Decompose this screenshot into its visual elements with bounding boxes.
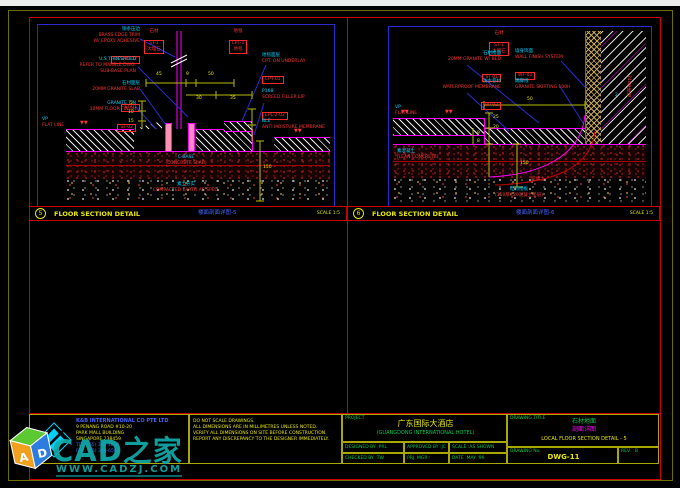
watermark: A D CAD之家 WWW.CADZJ.COM bbox=[6, 422, 236, 484]
field-scale: SCALEAS SHOWN bbox=[449, 442, 507, 453]
paper-edge bbox=[0, 0, 680, 6]
callout-note: FLAT LINE bbox=[42, 123, 102, 129]
tag-line-1: ST-1 bbox=[149, 41, 159, 46]
tag-box: ST-1大理石 bbox=[144, 40, 164, 54]
dim-number: 50 bbox=[527, 97, 533, 103]
field-value: AS SHOWN bbox=[469, 445, 494, 451]
field-checked-by: CHECKED BYTW bbox=[342, 453, 404, 464]
layer-label: 素土夯实 COMPACTED EARTH AS SPEC. bbox=[38, 182, 334, 194]
material-tag: 石材 ST-1大理石 bbox=[134, 29, 174, 54]
field-label: PRJ. MGR bbox=[407, 456, 430, 462]
callout-note: CPT. ON UNDERLAY bbox=[262, 59, 332, 65]
revision-label: REV bbox=[621, 449, 630, 455]
detail-scale: SCALE 1:5 bbox=[630, 211, 653, 217]
field-label: APPROVED BY bbox=[407, 445, 441, 451]
field-label: DESIGNED BY bbox=[345, 445, 379, 451]
drawing-title-cell: DRAWING TITLE 石材地面 剖面详图 LOCAL FLOOR SECT… bbox=[507, 414, 659, 447]
field-label: SCALE bbox=[452, 445, 469, 451]
callout: 踢脚线 GRANITE SKIRTING 100H bbox=[515, 79, 583, 91]
material-tag: 地毯 CPT-1地毯 bbox=[218, 29, 258, 54]
revision-cell: REV B bbox=[618, 447, 659, 464]
drawing-number-value: DWG-11 bbox=[508, 453, 619, 461]
callout: U.S THRESHOLD REFER TO MARBLE DWG. SUB-B… bbox=[40, 57, 136, 75]
dim-number: 5 bbox=[130, 101, 133, 107]
callout-ref-box: WP-02 bbox=[481, 102, 501, 110]
drawing-title-english: LOCAL FLOOR SECTION DETAIL - 5 bbox=[508, 436, 660, 442]
revision-value: B bbox=[635, 449, 638, 455]
field-designed-by: DESIGNED BYPRL bbox=[342, 442, 404, 453]
tag-line-1: ST-1 bbox=[494, 43, 504, 48]
dim-number: 9 bbox=[477, 131, 480, 137]
dim-number: 15 bbox=[128, 119, 134, 125]
project-name-english: (GUANGDONG INTERNATIONAL HOTEL) bbox=[343, 430, 508, 436]
field-label: CHECKED BY bbox=[345, 456, 377, 462]
wall-number: 2 bbox=[615, 93, 618, 99]
wall-annotation: 240厚砖墙 bbox=[625, 75, 631, 97]
dim-number: 9 bbox=[186, 72, 189, 78]
project-cell: PROJECT 广东国际大酒店 (GUANGDONG INTERNATIONAL… bbox=[342, 414, 507, 442]
finish-level-mark: ▼▼ bbox=[294, 128, 302, 134]
detail-5-title-bar: 5 FLOOR SECTION DETAIL 楼面剖面详图-5 SCALE 1:… bbox=[29, 206, 347, 221]
dim-number: 20 bbox=[493, 125, 499, 131]
watermark-url: WWW.CADZJ.COM bbox=[56, 464, 182, 477]
tag-line-1: CPT-1 bbox=[232, 41, 245, 46]
detail-title-chinese: 楼面剖面详图-6 bbox=[516, 210, 554, 217]
tag-line-2: 大理石 bbox=[147, 47, 161, 52]
layer-label: C-BASE (CONCRETE SLAB) bbox=[38, 155, 334, 167]
layer-label-note: (150厚C20混凝土垫层) bbox=[449, 193, 589, 199]
tag-caption: 石材 bbox=[134, 29, 174, 35]
finish-level-mark: ▼▼ bbox=[80, 120, 88, 126]
dim-number: 30 bbox=[196, 96, 202, 102]
callout: VP FLAT LINE bbox=[42, 117, 102, 129]
drawing-title-chinese-2: 剖面详图 bbox=[508, 426, 660, 434]
dim-number: 150 bbox=[263, 165, 272, 171]
field-label: DATE bbox=[452, 456, 467, 462]
detail-scale: SCALE 1:5 bbox=[317, 211, 340, 217]
finish-level-mark: ▼▼ bbox=[401, 109, 409, 115]
callout-note: W/ EPOXY ADHESIVE bbox=[40, 39, 140, 45]
detail-6-title-bar: 6 FLOOR SECTION DETAIL 楼面剖面详图-6 SCALE 1:… bbox=[347, 206, 660, 221]
layer-label: 素混凝土 (LEAN CONCRETE) bbox=[397, 149, 487, 161]
project-name-chinese: 广东国际大酒店 bbox=[343, 419, 508, 429]
callout: 墙身饰面 WALL FINISH SYSTEM WF-01 bbox=[515, 49, 583, 80]
dim-number: 150 bbox=[520, 161, 529, 167]
callout-note: WALL FINISH SYSTEM bbox=[515, 55, 583, 61]
dim-number: 25 bbox=[493, 115, 499, 121]
callout-note: 10MM FLOOR FINISH bbox=[40, 107, 136, 113]
callout-note: 20MM GRANITE SLAB bbox=[40, 87, 140, 93]
cadzj-cube-logo-icon: A D bbox=[8, 424, 54, 472]
callout-ref-box: ST-02 bbox=[117, 124, 136, 132]
detail-title: FLOOR SECTION DETAIL bbox=[54, 210, 140, 218]
callout-note: WATERPROOF MEMBRANE bbox=[409, 85, 501, 91]
dim-number: 50 bbox=[208, 72, 214, 78]
field-value: MAY '99 bbox=[467, 456, 485, 462]
tag-box: CPT-1地毯 bbox=[229, 40, 248, 54]
layer-label-note: COMPACTED EARTH AS SPEC. bbox=[38, 188, 334, 194]
field-value: JC bbox=[441, 445, 445, 451]
detail-number-bubble: 6 bbox=[353, 208, 364, 219]
callout: 地毯面层 CPT. ON UNDERLAY CPT-01 bbox=[262, 53, 332, 84]
callout-note: GRANITE SKIRTING 100H bbox=[515, 85, 583, 91]
tag-caption: 石材 bbox=[477, 31, 521, 37]
field-approved-by: APPROVED BYJC bbox=[404, 442, 449, 453]
field-prj-mgr: PRJ. MGR bbox=[404, 453, 449, 464]
drawing-title-chinese-1: 石材地面 bbox=[508, 418, 660, 426]
dim-number: 35 bbox=[230, 96, 236, 102]
layer-label: 结构楼板 (150厚C20混凝土垫层) bbox=[449, 187, 589, 199]
detail-title-chinese: 楼面剖面详图-5 bbox=[198, 210, 236, 217]
tag-line-2: 地毯 bbox=[234, 47, 243, 52]
fill-label: 回填土 bbox=[531, 177, 545, 183]
detail-title: FLOOR SECTION DETAIL bbox=[372, 210, 458, 218]
callout: 石材楼面 20MM GRANITE W/ BED ST-01 bbox=[409, 51, 501, 82]
cad-sheet: { "bars": [ {"num":"5","title":"FLOOR SE… bbox=[0, 0, 680, 488]
callout-note: SCREED FILLER LIP bbox=[262, 95, 332, 101]
tag-caption: 地毯 bbox=[218, 29, 258, 35]
field-value: TW bbox=[377, 456, 384, 462]
finish-level-mark: ▼▼ bbox=[445, 109, 453, 115]
field-value: PRL bbox=[379, 445, 387, 451]
layer-label-note: (LEAN CONCRETE) bbox=[397, 155, 487, 161]
detail-number-bubble: 5 bbox=[35, 208, 46, 219]
layer-label-note: (CONCRETE SLAB) bbox=[38, 161, 334, 167]
callout: P168 SCREED FILLER LIP EPL-2-02 bbox=[262, 89, 332, 120]
callout-note: SUB-BASE PLAN bbox=[40, 69, 136, 75]
dim-number: 45 bbox=[156, 72, 162, 78]
dim-number: 8 bbox=[477, 139, 480, 145]
field-date: DATEMAY '99 bbox=[449, 453, 507, 464]
detail-6-drawing: 石材 ST-1大理石 石材楼面 20MM GRANITE W/ BED ST-0… bbox=[388, 26, 652, 208]
drawing-number-cell: DRAWING No. DWG-11 bbox=[507, 447, 618, 464]
callout-note: 20MM GRANITE W/ BED bbox=[409, 57, 501, 63]
dim-number: 10 bbox=[128, 110, 134, 116]
detail-5-drawing: 石材 ST-1大理石 地毯 CPT-1地毯 铜条压边 BRASS EDGE TR… bbox=[37, 24, 335, 208]
callout-ref-box: CPT-01 bbox=[262, 76, 284, 84]
